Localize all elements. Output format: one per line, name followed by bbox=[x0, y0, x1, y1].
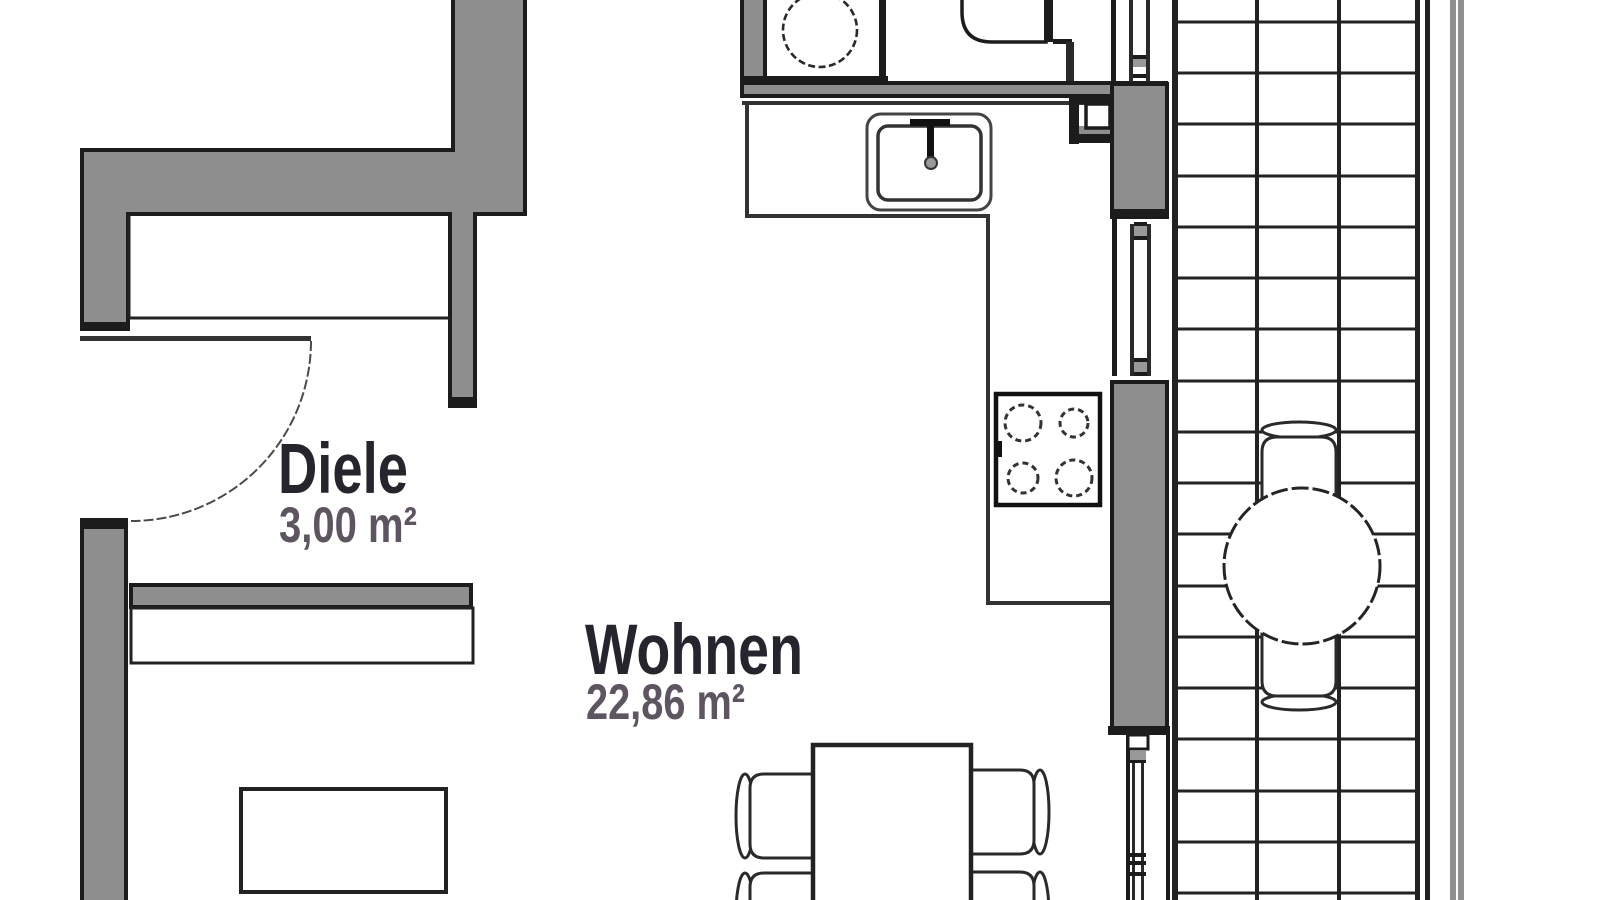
svg-text:3,00 m²: 3,00 m² bbox=[279, 497, 417, 553]
svg-text:22,86 m²: 22,86 m² bbox=[586, 674, 745, 730]
